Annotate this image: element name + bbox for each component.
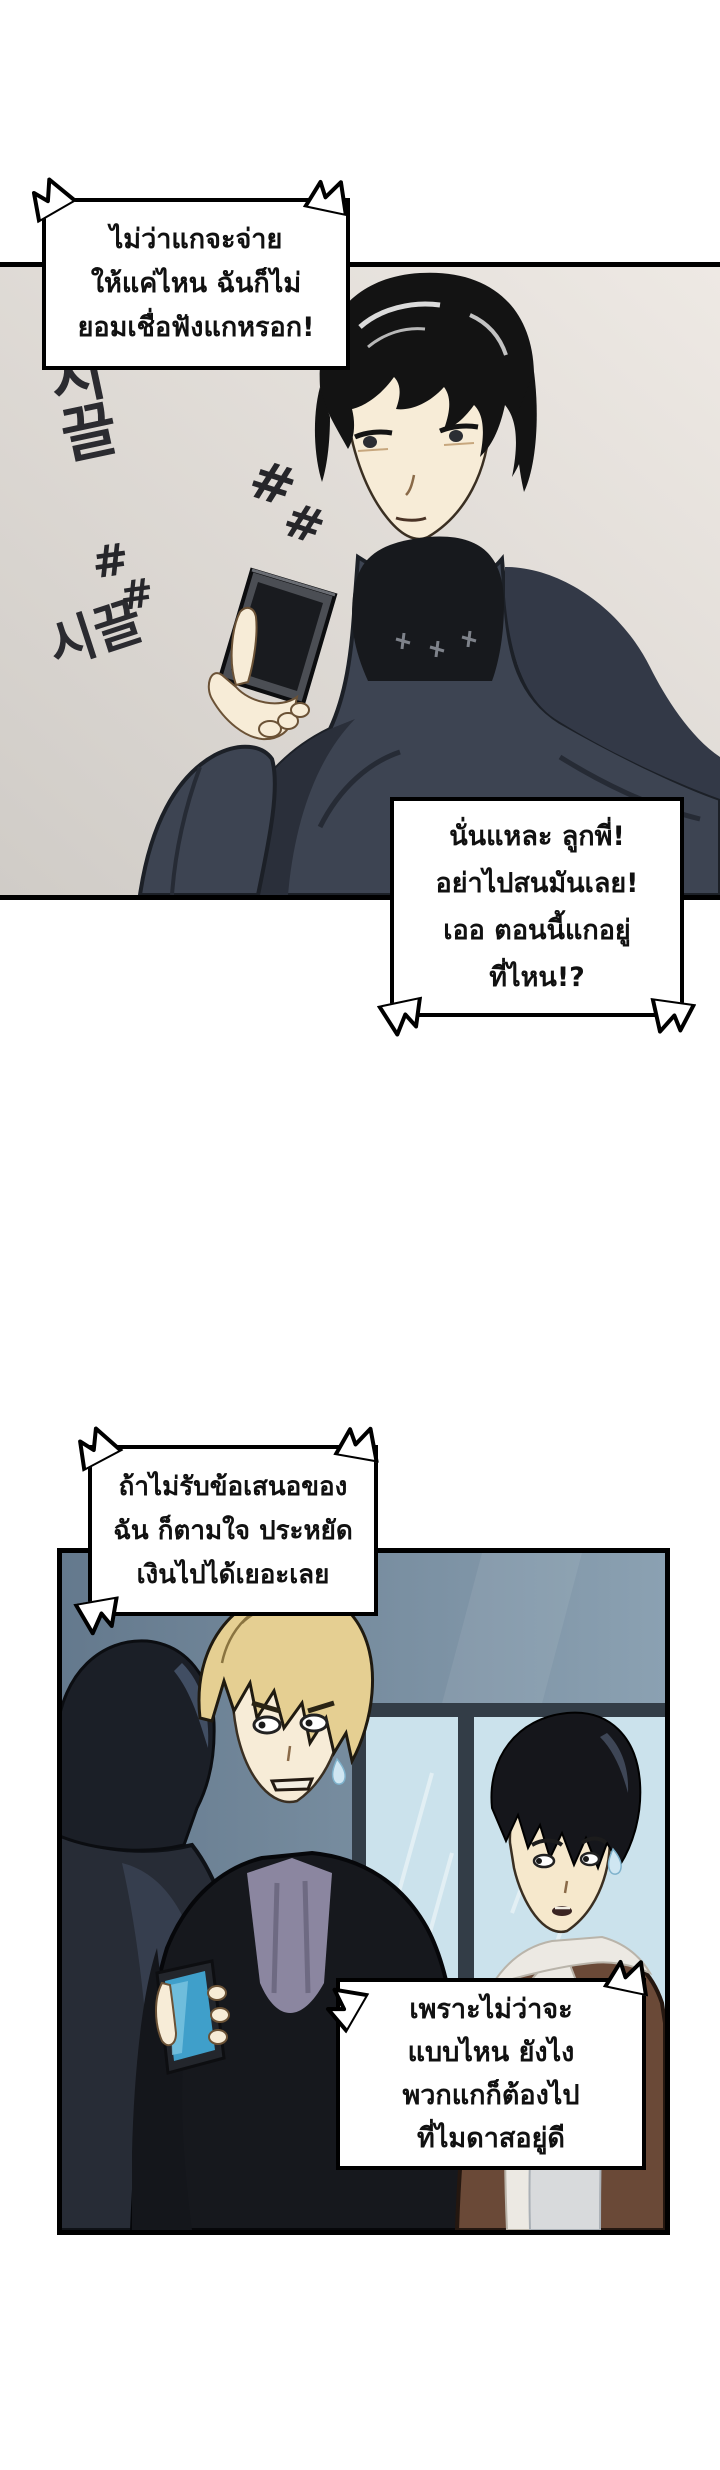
bubble-corner-burst [646, 998, 696, 1038]
bubble-line: เออ ตอนนี้แกอยู่ [394, 907, 680, 954]
sfx-hash-marks-lower: # # [92, 536, 182, 636]
bubble-line: พวกแกก็ต้องไป [340, 2074, 642, 2117]
speech-bubble-1: ไม่ว่าแกจะจ่าย ให้แค่ไหน ฉันก็ไม่ ยอมเชื… [42, 198, 350, 370]
sfx-hash-marks-upper: # # [250, 452, 350, 562]
bubble-line: อย่าไปสนมันเลย! [394, 860, 680, 907]
bubble-line: เพราะไม่ว่าจะ [340, 1988, 642, 2031]
collar [352, 537, 504, 681]
bubble-corner-burst [21, 171, 78, 223]
speech-bubble-2: นั่นแหละ ลูกพี่! อย่าไปสนมันเลย! เออ ตอน… [390, 797, 684, 1017]
bubble-line: ยอมเชื่อฟังแกหรอก! [46, 306, 346, 350]
bubble-line: ที่ไหน!? [394, 954, 680, 1001]
hash-icon: # [117, 570, 157, 620]
bubble-line: เงินไปได้เยอะเลย [92, 1553, 374, 1597]
bubble-corner-burst [377, 997, 429, 1040]
speech-bubble-3: ถ้าไม่รับข้อเสนอของ ฉัน ก็ตามใจ ประหยัด … [88, 1445, 378, 1616]
bubble-line: ถ้าไม่รับข้อเสนอของ [92, 1465, 374, 1509]
blond-mouth [272, 1779, 312, 1790]
bubble-line: ให้แค่ไหน ฉันก็ไม่ [46, 262, 346, 306]
bubble-corner-burst [333, 1421, 384, 1462]
bubble-corner-burst [303, 174, 355, 217]
bubble-line: ที่ไมดาสอยู่ดี [340, 2117, 642, 2160]
speech-bubble-4: เพราะไม่ว่าจะ แบบไหน ยังไง พวกแกก็ต้องไป… [336, 1978, 646, 2170]
bubble-line: ฉัน ก็ตามใจ ประหยัด [92, 1509, 374, 1553]
bubble-line: นั่นแหละ ลูกพี่! [394, 813, 680, 860]
comic-page: 시끌 시끌 # # # # [0, 0, 720, 2470]
bubble-line: แบบไหน ยังไง [340, 2031, 642, 2074]
bubble-line: ไม่ว่าแกจะจ่าย [46, 218, 346, 262]
